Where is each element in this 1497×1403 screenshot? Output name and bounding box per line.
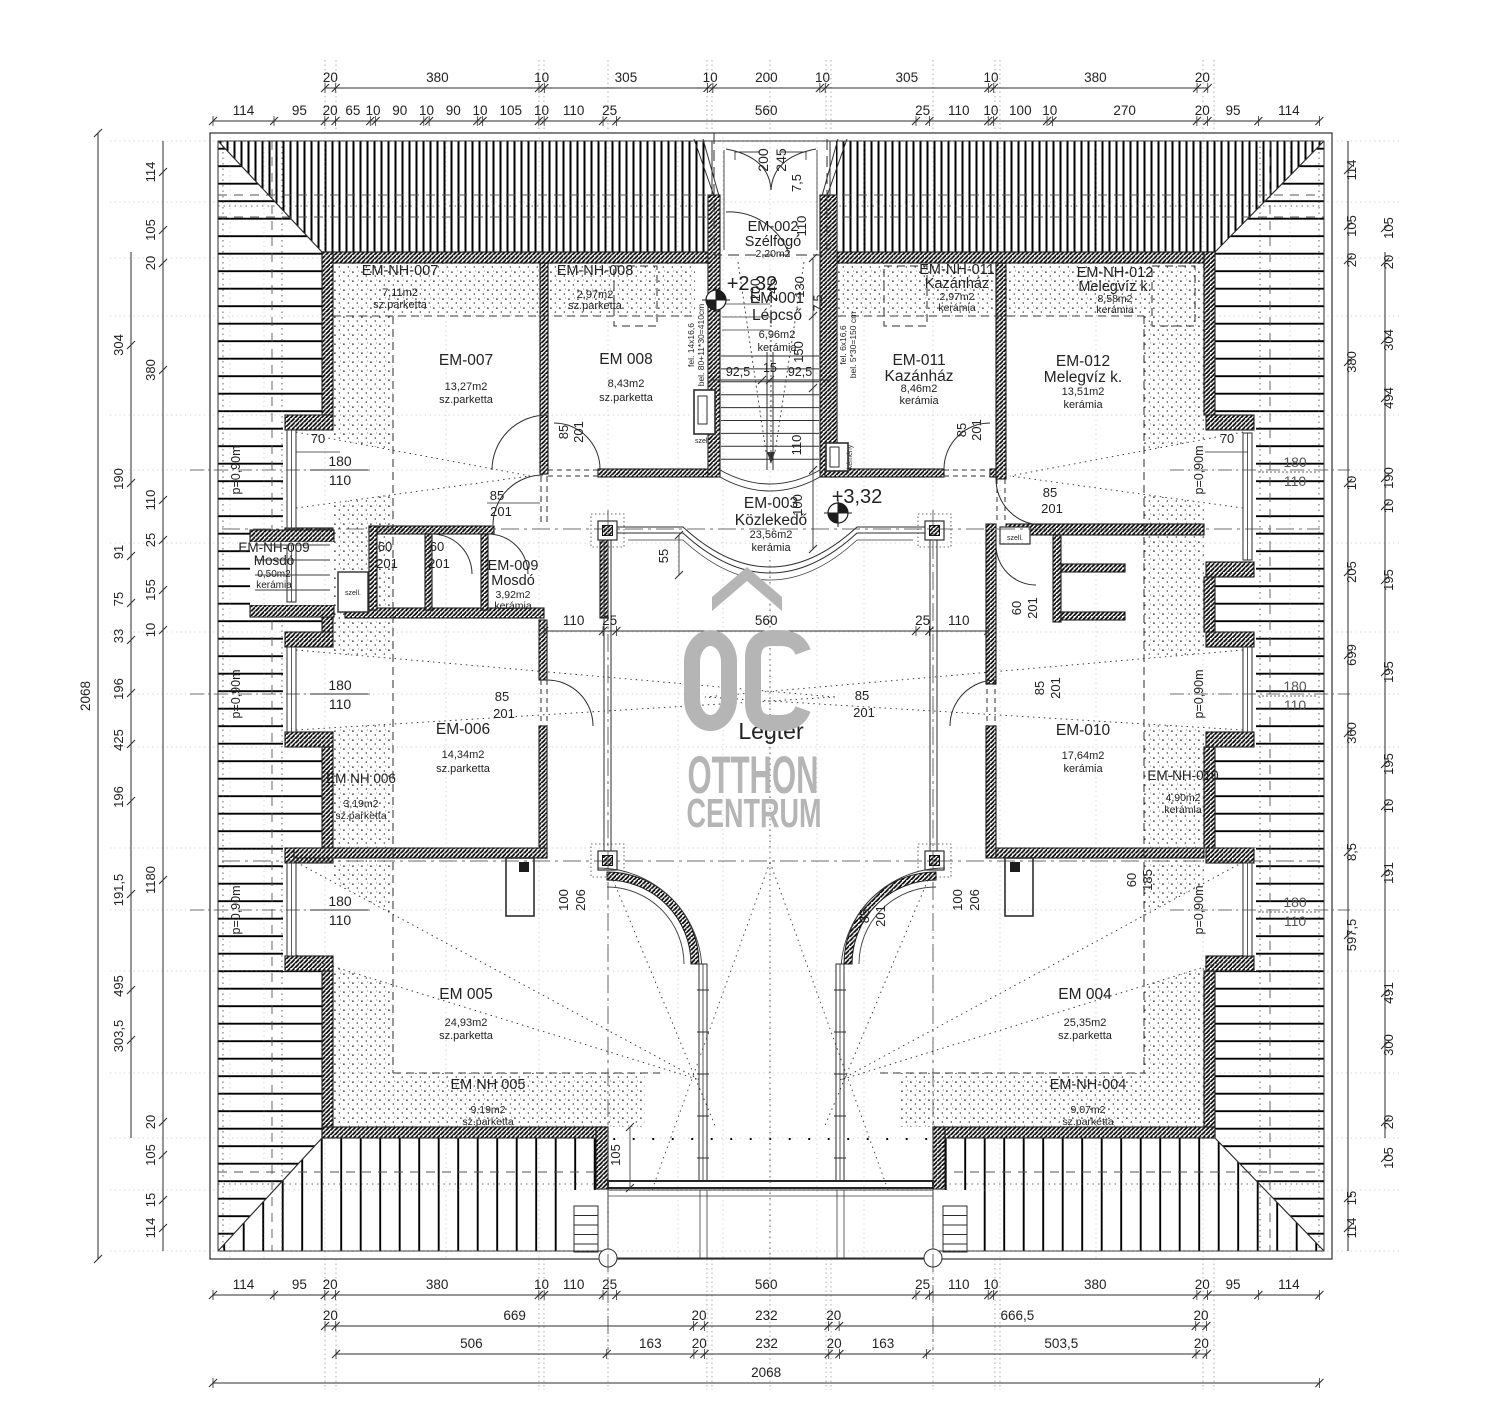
svg-text:20: 20 [323,103,338,118]
svg-text:114: 114 [1344,1218,1359,1239]
svg-text:95: 95 [292,103,307,118]
svg-text:szell.: szell. [1007,535,1023,542]
svg-text:EM 005: EM 005 [439,986,492,1003]
svg-text:85: 85 [857,909,872,923]
svg-text:65: 65 [345,103,360,118]
svg-text:699: 699 [1344,644,1359,666]
svg-text:20: 20 [1195,70,1210,85]
svg-text:25: 25 [602,1277,617,1292]
svg-text:155: 155 [143,579,158,601]
svg-text:p=0,90m: p=0,90m [1192,670,1206,719]
svg-text:270: 270 [1113,103,1136,118]
svg-text:25: 25 [143,533,158,547]
svg-text:EM 004: EM 004 [1058,986,1112,1003]
svg-text:110: 110 [948,613,970,628]
svg-text:195: 195 [1381,753,1396,775]
svg-text:232: 232 [755,1336,778,1351]
svg-text:p=0,90m: p=0,90m [229,886,243,935]
svg-text:380: 380 [426,70,449,85]
svg-text:506: 506 [460,1336,483,1351]
svg-text:sz.parketta: sz.parketta [439,1030,494,1042]
svg-text:85: 85 [490,488,504,503]
svg-text:25,35m2: 25,35m2 [1064,1017,1107,1029]
svg-text:EM-NH-008: EM-NH-008 [557,263,634,279]
svg-text:25: 25 [915,1277,930,1292]
svg-text:100: 100 [1009,103,1032,118]
svg-text:95: 95 [1225,103,1240,118]
svg-text:669: 669 [503,1308,526,1323]
svg-text:fel. 14x16,6: fel. 14x16,6 [686,323,696,367]
svg-text:110: 110 [329,912,352,928]
svg-text:200: 200 [755,70,778,85]
svg-text:4,90m2: 4,90m2 [1165,792,1200,804]
svg-text:10: 10 [534,70,549,85]
svg-text:105: 105 [1381,1147,1396,1169]
svg-text:20: 20 [1195,103,1210,118]
svg-text:105: 105 [143,219,158,241]
svg-text:10: 10 [472,103,487,118]
svg-text:201: 201 [853,705,875,720]
svg-text:560: 560 [755,613,778,628]
svg-text:503,5: 503,5 [1044,1336,1078,1351]
svg-text:196: 196 [111,786,126,808]
svg-text:15: 15 [143,1193,158,1207]
svg-text:EM-NH-007: EM-NH-007 [362,263,439,279]
svg-text:20: 20 [323,70,338,85]
svg-text:666,5: 666,5 [1001,1308,1035,1323]
svg-text:8,43m2: 8,43m2 [608,378,645,390]
svg-text:Mosdó: Mosdó [254,553,295,568]
svg-text:380: 380 [1344,351,1359,373]
svg-text:114: 114 [233,1277,255,1292]
svg-text:33: 33 [111,629,126,643]
svg-text:6,96m2: 6,96m2 [759,329,796,341]
svg-text:kerámia: kerámia [1063,399,1103,411]
svg-text:100: 100 [950,889,965,911]
svg-text:201: 201 [873,905,888,927]
svg-text:85: 85 [1043,485,1057,500]
svg-text:20: 20 [827,1336,842,1351]
svg-text:245: 245 [764,278,780,302]
svg-text:180: 180 [328,677,352,693]
svg-text:114: 114 [143,162,158,183]
svg-text:EM NH 006: EM NH 006 [326,771,396,786]
svg-text:232: 232 [755,1308,778,1323]
svg-text:p=0,90m: p=0,90m [229,446,243,495]
svg-text:10: 10 [703,70,718,85]
svg-text:195: 195 [1381,569,1396,591]
svg-text:17,64m2: 17,64m2 [1062,750,1105,762]
svg-text:20: 20 [1344,253,1359,267]
svg-text:201: 201 [1025,597,1040,619]
svg-text:70: 70 [311,431,325,446]
svg-text:60: 60 [378,539,392,554]
svg-text:191: 191 [1381,862,1396,884]
svg-text:245: 245 [773,148,789,172]
svg-text:110: 110 [563,613,585,628]
svg-text:92,5: 92,5 [726,365,750,379]
svg-text:105: 105 [143,1144,158,1166]
svg-text:0,50m2: 0,50m2 [257,569,291,580]
svg-text:105: 105 [1381,217,1396,239]
svg-text:201: 201 [376,556,398,571]
svg-text:380: 380 [426,1277,449,1292]
svg-text:100: 100 [556,889,571,911]
svg-text:90: 90 [392,103,407,118]
svg-text:20: 20 [826,1308,841,1323]
svg-text:1180: 1180 [143,866,158,894]
svg-text:sz.parketta: sz.parketta [1058,1030,1113,1042]
svg-text:196: 196 [111,678,126,700]
svg-text:195: 195 [1381,661,1396,683]
svg-text:20: 20 [1381,255,1396,269]
svg-text:114: 114 [143,1218,158,1239]
svg-text:114: 114 [1344,160,1359,181]
svg-text:10: 10 [365,103,380,118]
svg-text:560: 560 [755,1277,778,1292]
svg-text:180: 180 [328,453,352,469]
svg-text:10: 10 [815,70,830,85]
svg-text:185: 185 [1140,869,1155,891]
svg-text:sz.parketta: sz.parketta [436,763,491,775]
svg-text:sz.parketta: sz.parketta [335,810,387,822]
svg-text:110: 110 [1284,473,1307,489]
svg-text:sz.parketta: sz.parketta [1062,1116,1114,1128]
svg-text:105: 105 [1344,215,1359,237]
svg-text:20: 20 [691,1308,706,1323]
svg-text:Mosdó: Mosdó [491,573,535,589]
svg-text:+3,32: +3,32 [832,486,883,508]
svg-text:25: 25 [915,103,930,118]
svg-text:kerámia: kerámia [1063,763,1103,775]
svg-text:305: 305 [615,70,638,85]
svg-text:105: 105 [499,103,522,118]
svg-text:495: 495 [111,975,126,997]
svg-text:Melegvíz k.: Melegvíz k. [1044,369,1122,386]
svg-text:85: 85 [855,688,869,703]
svg-text:10: 10 [1381,499,1396,513]
svg-text:303,5: 303,5 [111,1020,126,1053]
svg-text:23,56m2: 23,56m2 [750,529,793,541]
svg-text:201: 201 [428,556,450,571]
svg-text:105: 105 [608,1144,623,1166]
svg-text:20: 20 [323,1277,338,1292]
svg-text:110: 110 [143,490,158,511]
svg-text:kerámia: kerámia [1096,304,1134,316]
svg-text:10: 10 [534,103,549,118]
svg-text:8,5: 8,5 [1344,843,1359,861]
svg-text:p=0,90m: p=0,90m [229,670,243,719]
svg-text:EM-002: EM-002 [748,219,799,235]
svg-text:EM-011: EM-011 [892,352,945,369]
svg-text:10: 10 [143,623,158,637]
svg-text:380: 380 [1084,1277,1107,1292]
svg-text:bel. 5*30=150 cm: bel. 5*30=150 cm [848,312,858,378]
svg-text:597,5: 597,5 [1344,919,1359,952]
svg-text:60: 60 [430,539,444,554]
svg-text:95: 95 [1225,1277,1240,1292]
svg-text:190: 190 [1381,467,1396,489]
svg-text:7,5: 7,5 [789,174,804,192]
svg-text:560: 560 [755,103,778,118]
svg-text:EM-006: EM-006 [436,721,490,738]
svg-text:2068: 2068 [751,1365,781,1380]
svg-text:304: 304 [1381,329,1396,351]
svg-text:201: 201 [969,419,984,441]
svg-text:Kazánház: Kazánház [925,276,990,292]
svg-text:163: 163 [872,1336,895,1351]
svg-text:110: 110 [948,1277,970,1292]
svg-text:15: 15 [1344,1191,1359,1205]
svg-text:180: 180 [1283,678,1307,694]
svg-text:200: 200 [747,278,763,302]
svg-text:20: 20 [143,256,158,270]
svg-text:180: 180 [1283,894,1307,910]
svg-text:92,5: 92,5 [788,365,812,379]
svg-text:300: 300 [1381,1034,1396,1056]
svg-text:7,11m2: 7,11m2 [382,287,418,299]
svg-text:201: 201 [493,706,515,721]
svg-text:sz.parketta: sz.parketta [373,299,428,311]
svg-text:114: 114 [233,103,255,118]
svg-text:10: 10 [419,103,434,118]
svg-text:10: 10 [1381,799,1396,813]
svg-text:20: 20 [1195,1277,1210,1292]
svg-text:201: 201 [1048,677,1063,699]
svg-text:380: 380 [143,359,158,381]
svg-text:55: 55 [656,549,671,563]
svg-text:85: 85 [1032,681,1047,695]
svg-text:kémény: kémény [847,444,854,469]
svg-text:13,27m2: 13,27m2 [445,381,488,393]
svg-text:201: 201 [1041,501,1063,516]
svg-text:EM NH 005: EM NH 005 [451,1077,526,1093]
svg-text:110: 110 [329,696,352,712]
svg-text:85: 85 [495,689,509,704]
svg-text:494: 494 [1381,387,1396,409]
svg-text:110: 110 [563,1277,585,1292]
svg-text:206: 206 [573,889,588,911]
svg-text:sz.parketta: sz.parketta [568,300,623,312]
svg-text:200: 200 [755,148,771,172]
svg-text:85: 85 [556,425,571,439]
svg-text:90: 90 [446,103,461,118]
svg-text:20: 20 [1381,1115,1396,1129]
svg-text:p=0,90m: p=0,90m [1192,446,1206,495]
svg-text:163: 163 [639,1336,662,1351]
svg-text:110: 110 [794,216,809,237]
svg-text:EM-NH-004: EM-NH-004 [1050,1077,1127,1093]
svg-text:201: 201 [571,421,586,443]
svg-text:EM-007: EM-007 [439,352,493,369]
svg-text:kerámia: kerámia [751,542,791,554]
svg-text:304: 304 [111,334,126,356]
svg-text:Lépcső: Lépcső [752,307,802,324]
svg-text:25: 25 [915,613,930,628]
svg-text:114: 114 [1278,103,1300,118]
svg-text:EM-012: EM-012 [1056,353,1110,370]
svg-text:201: 201 [490,504,512,519]
svg-text:20: 20 [323,1308,338,1323]
svg-text:kerámia: kerámia [1164,804,1202,816]
svg-text:425: 425 [111,729,126,751]
svg-text:EM 008: EM 008 [599,351,652,368]
svg-text:95: 95 [292,1277,307,1292]
svg-text:sz.parketta: sz.parketta [599,392,654,404]
svg-text:3,19m2: 3,19m2 [343,798,378,810]
svg-text:60: 60 [1124,873,1139,887]
svg-text:75: 75 [111,592,126,606]
svg-text:8,46m2: 8,46m2 [901,383,938,395]
svg-text:100: 100 [790,494,805,516]
svg-text:206: 206 [967,889,982,911]
svg-text:kerámia: kerámia [494,600,532,612]
svg-text:150: 150 [791,341,806,363]
svg-text:110: 110 [1284,913,1307,929]
svg-text:180: 180 [328,893,352,909]
svg-text:13,51m2: 13,51m2 [1062,386,1105,398]
svg-text:180: 180 [1283,454,1307,470]
svg-text:25: 25 [602,613,617,628]
svg-text:p=0,90m: p=0,90m [1192,886,1206,935]
svg-text:70: 70 [1220,431,1234,446]
svg-text:91: 91 [111,545,126,559]
svg-text:2068: 2068 [78,681,93,711]
svg-text:130: 130 [792,276,807,298]
svg-text:kerámia: kerámia [256,580,292,591]
svg-text:491: 491 [1381,982,1396,1004]
svg-text:60: 60 [1009,601,1024,615]
svg-text:205: 205 [1344,561,1359,583]
svg-text:85: 85 [954,423,969,437]
svg-text:sz.parketta: sz.parketta [462,1116,514,1128]
svg-text:10: 10 [534,1277,549,1292]
svg-text:191,5: 191,5 [111,874,126,907]
svg-text:10: 10 [983,103,998,118]
svg-text:10: 10 [984,70,999,85]
svg-text:14,34m2: 14,34m2 [442,749,485,761]
svg-text:24,93m2: 24,93m2 [445,1017,488,1029]
svg-text:EM-010: EM-010 [1056,722,1111,739]
svg-text:110: 110 [563,103,585,118]
svg-text:110: 110 [1284,697,1307,713]
svg-text:2,20m2: 2,20m2 [755,248,790,260]
svg-text:szell.: szell. [345,590,361,597]
svg-text:fel. 6x16,6: fel. 6x16,6 [838,325,848,364]
svg-text:9,19m2: 9,19m2 [470,1104,505,1116]
svg-text:szell.: szell. [695,438,711,445]
svg-text:kerámia: kerámia [938,302,976,314]
svg-text:114: 114 [1278,1277,1300,1292]
svg-text:25: 25 [602,103,617,118]
svg-text:EM-NH-010: EM-NH-010 [1147,768,1218,783]
svg-text:110: 110 [329,472,352,488]
svg-text:110: 110 [789,435,804,456]
svg-text:10: 10 [983,1277,998,1292]
svg-text:sz.parketta: sz.parketta [439,394,494,406]
svg-text:20: 20 [143,1115,158,1129]
svg-text:CENTRUM: CENTRUM [687,790,822,836]
svg-text:190: 190 [111,468,126,490]
svg-text:20: 20 [692,1336,707,1351]
svg-text:bel. 80+11*30=410cm: bel. 80+11*30=410cm [696,304,706,387]
svg-text:20: 20 [1194,1336,1209,1351]
svg-text:EM-009: EM-009 [488,558,539,574]
svg-text:110: 110 [948,103,970,118]
svg-text:305: 305 [896,70,919,85]
svg-text:20: 20 [1194,1308,1209,1323]
svg-text:kerámia: kerámia [899,395,939,407]
svg-text:10: 10 [1344,476,1359,490]
svg-text:9,07m2: 9,07m2 [1070,1104,1105,1116]
svg-text:360: 360 [1344,722,1359,744]
svg-text:10: 10 [1042,103,1057,118]
svg-text:380: 380 [1084,70,1107,85]
